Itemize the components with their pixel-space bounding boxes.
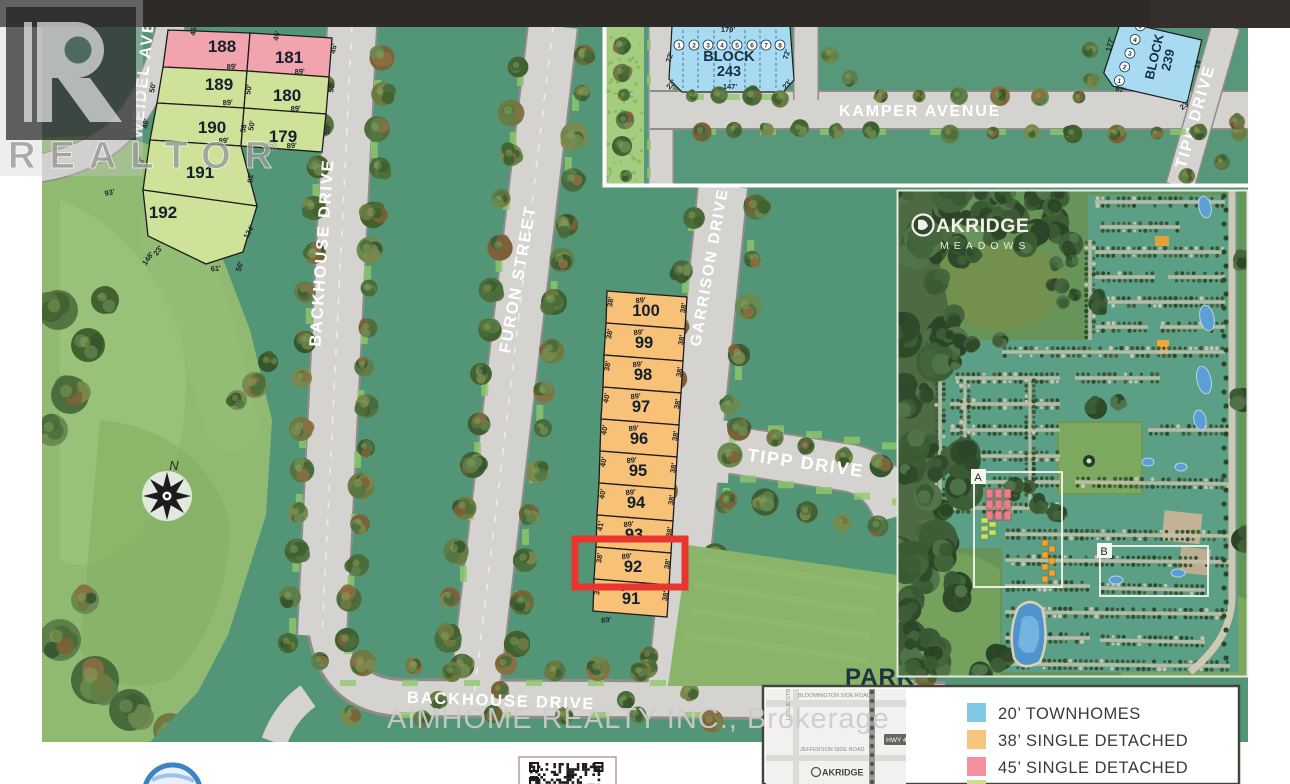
svg-text:89': 89' [635,295,646,305]
svg-text:89': 89' [222,98,233,108]
svg-text:38': 38' [672,398,683,410]
svg-text:50': 50' [322,124,333,136]
svg-text:188: 188 [208,37,236,56]
svg-text:41': 41' [595,520,606,532]
svg-text:89': 89' [294,67,305,77]
svg-text:40': 40' [597,488,608,500]
svg-text:38': 38' [676,334,687,346]
svg-text:AIMHOME REALTY INC., Brokerage: AIMHOME REALTY INC., Brokerage [387,703,890,735]
svg-text:38': 38' [605,296,616,308]
svg-text:38': 38' [660,590,671,602]
svg-text:89': 89' [623,519,634,529]
svg-text:89': 89' [286,141,297,151]
svg-text:50': 50' [243,84,254,96]
svg-text:REALTOR: REALTOR [8,135,286,177]
svg-text:38': 38' [678,302,689,314]
svg-text:AKRIDGE: AKRIDGE [822,768,864,778]
svg-text:243: 243 [717,64,741,80]
svg-text:®: ® [266,139,277,156]
svg-text:180: 180 [273,86,301,105]
svg-text:38': 38' [662,558,673,570]
svg-text:89': 89' [290,104,301,114]
svg-text:93': 93' [104,187,116,198]
svg-text:89': 89' [601,615,612,625]
svg-text:89': 89' [621,551,632,561]
svg-text:45’ SINGLE DETACHED: 45’ SINGLE DETACHED [998,759,1188,777]
svg-text:38': 38' [670,430,681,442]
svg-text:BLOOMINGTON SIDE ROAD: BLOOMINGTON SIDE ROAD [798,693,871,699]
svg-text:89': 89' [626,455,637,465]
svg-text:B: B [1100,546,1107,558]
svg-text:8: 8 [778,43,782,50]
svg-text:38': 38' [594,552,605,564]
svg-text:38': 38' [604,328,615,340]
svg-text:2: 2 [692,43,696,50]
svg-text:BLOCK: BLOCK [703,49,755,65]
svg-text:40': 40' [601,392,612,404]
svg-text:MEADOWS: MEADOWS [940,240,1030,252]
svg-text:38': 38' [666,494,677,506]
svg-text:89': 89' [630,391,641,401]
svg-text:40': 40' [598,456,609,468]
svg-text:45': 45' [271,30,282,42]
svg-text:38': 38' [602,360,613,372]
svg-text:89': 89' [625,487,636,497]
svg-text:38’ SINGLE DETACHED: 38’ SINGLE DETACHED [998,732,1188,750]
svg-text:89': 89' [226,62,237,72]
svg-text:50': 50' [326,82,337,94]
svg-text:61': 61' [210,264,221,274]
svg-text:7: 7 [764,43,768,50]
svg-text:50': 50' [246,120,257,132]
svg-text:40': 40' [599,424,610,436]
svg-text:38': 38' [674,366,685,378]
svg-text:20’ TOWNHOMES: 20’ TOWNHOMES [998,705,1141,723]
svg-text:A: A [974,472,982,484]
svg-text:38': 38' [668,462,679,474]
svg-text:KAMPER AVENUE: KAMPER AVENUE [839,103,1001,120]
svg-text:192: 192 [149,203,177,222]
svg-text:45': 45' [328,43,339,55]
svg-text:89': 89' [628,423,639,433]
svg-text:189: 189 [205,75,233,94]
svg-text:89': 89' [632,359,643,369]
svg-text:181: 181 [275,48,303,67]
svg-text:JEFFERSON SIDE ROAD: JEFFERSON SIDE ROAD [800,747,865,753]
svg-text:1: 1 [677,43,681,50]
svg-text:N: N [169,458,179,473]
svg-text:89': 89' [633,327,644,337]
svg-text:AKRIDGE: AKRIDGE [936,215,1029,237]
